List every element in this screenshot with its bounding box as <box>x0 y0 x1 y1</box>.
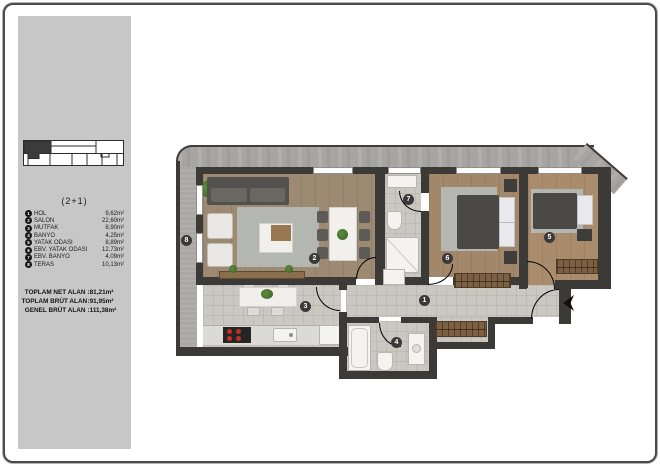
area-totals: TOPLAM NET ALAN :81,21m² TOPLAM BRÜT ALA… <box>18 288 131 315</box>
pillow <box>577 195 593 225</box>
total-label: TOPLAM NET ALAN <box>22 288 86 297</box>
wall <box>421 167 429 193</box>
wall <box>339 285 347 290</box>
toilet <box>377 352 393 371</box>
dining-chair <box>317 211 328 223</box>
wardrobe <box>556 259 598 274</box>
nightstand <box>504 179 517 192</box>
window <box>196 185 203 215</box>
toilet <box>387 211 402 230</box>
dining-chair <box>359 229 370 241</box>
legend-room-area: 4,25m² <box>105 233 124 239</box>
wardrobe-line <box>455 281 510 282</box>
legend-room-name: EBV. BANYO <box>34 254 70 260</box>
total-value: :81,21m² <box>88 288 128 297</box>
window <box>196 233 203 263</box>
room-marker: 3 <box>300 301 311 312</box>
wardrobe <box>435 321 487 337</box>
legend-number-badge: 7 <box>25 254 32 261</box>
plant <box>229 265 237 273</box>
kitchen-chair <box>271 307 284 316</box>
wall <box>401 317 430 323</box>
nightstand <box>504 251 517 264</box>
legend-number-badge: 8 <box>25 261 32 268</box>
vanity-sink <box>412 344 421 353</box>
total-row: TOPLAM BRÜT ALAN :91,95m² <box>18 297 131 306</box>
window <box>538 167 582 174</box>
window <box>456 167 501 174</box>
kitchen-chair <box>247 307 260 316</box>
total-label: GENEL BRÜT ALAN <box>22 306 86 315</box>
total-label: TOPLAM BRÜT ALAN <box>22 297 86 306</box>
legend-number-badge: 1 <box>25 210 32 217</box>
wall <box>488 317 495 349</box>
legend-number-badge: 3 <box>25 225 32 232</box>
dining-chair <box>359 211 370 223</box>
legend-room-name: HOL <box>34 211 46 217</box>
wardrobe-line <box>436 329 486 330</box>
legend-number-badge: 4 <box>25 232 32 239</box>
entrance-arrow-icon <box>561 295 575 311</box>
legend-number-badge: 5 <box>25 239 32 246</box>
legend-number-badge: 6 <box>25 247 32 254</box>
faucet <box>289 333 293 337</box>
bed <box>457 195 499 249</box>
key-plan-diagram <box>23 140 124 166</box>
window <box>313 167 353 174</box>
wardrobe-line <box>557 267 597 268</box>
armchair <box>207 243 233 267</box>
legend-room-area: 22,60m² <box>102 218 124 224</box>
kitchen-table-plant <box>261 289 273 299</box>
coffee-table-tray <box>271 225 291 241</box>
burner <box>236 336 241 341</box>
pillow <box>499 197 515 247</box>
wall <box>176 347 348 356</box>
plant <box>285 265 293 273</box>
shower <box>386 237 419 273</box>
legend-item: 4 BANYO 4,25m² <box>18 232 131 239</box>
pillow-divider <box>500 222 514 223</box>
legend-room-area: 12,73m² <box>102 247 124 253</box>
legend-item: 5 YATAK ODASI 8,89m² <box>18 239 131 246</box>
legend-item: 3 MUTFAK 8,90m² <box>18 225 131 232</box>
floor-plan-page: (2+1) 1 HOL 9,62m² 2 SALON 22,60m² 3 MUT… <box>3 3 657 463</box>
legend-room-area: 9,62m² <box>105 211 124 217</box>
legend-room-area: 10,13m² <box>102 262 124 268</box>
room-marker: 5 <box>544 232 555 243</box>
room-marker: 1 <box>419 295 430 306</box>
shower-diagonal <box>386 238 418 272</box>
refrigerator <box>319 325 341 345</box>
nightstand <box>577 229 592 241</box>
exterior-wall-top <box>176 145 594 167</box>
vanity <box>408 333 425 365</box>
door-arc <box>428 264 453 285</box>
bathtub-inner <box>351 328 368 368</box>
wardrobe <box>454 273 511 288</box>
terrace-floor <box>180 167 197 347</box>
wall <box>495 317 533 324</box>
armchair <box>207 213 233 239</box>
room-marker: 8 <box>181 235 192 246</box>
legend-item: 1 HOL 9,62m² <box>18 210 131 217</box>
wall <box>598 167 611 289</box>
burner <box>227 329 232 334</box>
sofa-cushion <box>250 188 285 202</box>
dining-chair <box>317 229 328 241</box>
legend-room-name: SALON <box>34 218 54 224</box>
room-marker: 7 <box>403 194 414 205</box>
legend-room-name: BANYO <box>34 233 55 239</box>
window <box>388 167 421 174</box>
legend-room-name: EBV. YATAK ODASI <box>34 247 87 253</box>
room-marker: 6 <box>442 253 453 264</box>
legend-item: 7 EBV. BANYO 4,09m² <box>18 254 131 261</box>
legend-item: 8 TERAS 10,13m² <box>18 261 131 268</box>
legend-item: 2 SALON 22,60m² <box>18 217 131 224</box>
legend-room-area: 8,89m² <box>105 240 124 246</box>
total-value: :111,38m² <box>88 306 128 315</box>
plan-type-label: (2+1) <box>18 196 131 206</box>
dining-chair <box>359 247 370 259</box>
wall <box>429 342 495 349</box>
sofa <box>207 177 289 205</box>
room-marker: 2 <box>309 253 320 264</box>
room-legend: 1 HOL 9,62m² 2 SALON 22,60m² 3 MUTFAK 8,… <box>18 210 131 268</box>
legend-number-badge: 2 <box>25 217 32 224</box>
total-value: :91,95m² <box>88 297 128 306</box>
legend-item: 6 EBV. YATAK ODASI 12,73m² <box>18 246 131 253</box>
wall <box>346 317 379 323</box>
cabinet <box>383 269 405 285</box>
wall <box>339 371 437 379</box>
floor-plan: 1 2 3 4 5 6 7 8 <box>173 137 651 389</box>
sidebar: (2+1) 1 HOL 9,62m² 2 SALON 22,60m² 3 MUT… <box>18 16 131 449</box>
wall <box>519 280 527 289</box>
wall <box>375 167 385 285</box>
legend-room-area: 4,09m² <box>105 254 124 260</box>
total-row: GENEL BRÜT ALAN :111,38m² <box>18 306 131 315</box>
total-row: TOPLAM NET ALAN :81,21m² <box>18 288 131 297</box>
table-plant <box>337 229 348 240</box>
sofa-cushion <box>211 188 247 202</box>
bathroom-sink <box>387 175 417 188</box>
burner <box>227 336 232 341</box>
bathtub <box>348 325 371 371</box>
bed <box>533 193 577 229</box>
legend-room-area: 8,90m² <box>105 225 124 231</box>
legend-room-name: MUTFAK <box>34 225 58 231</box>
kitchen-sink <box>273 328 297 342</box>
room-marker: 4 <box>391 337 402 348</box>
legend-room-name: YATAK ODASI <box>34 240 73 246</box>
stove <box>223 327 251 343</box>
key-plan <box>23 140 124 166</box>
burner <box>236 329 241 334</box>
legend-room-name: TERAS <box>34 262 54 268</box>
